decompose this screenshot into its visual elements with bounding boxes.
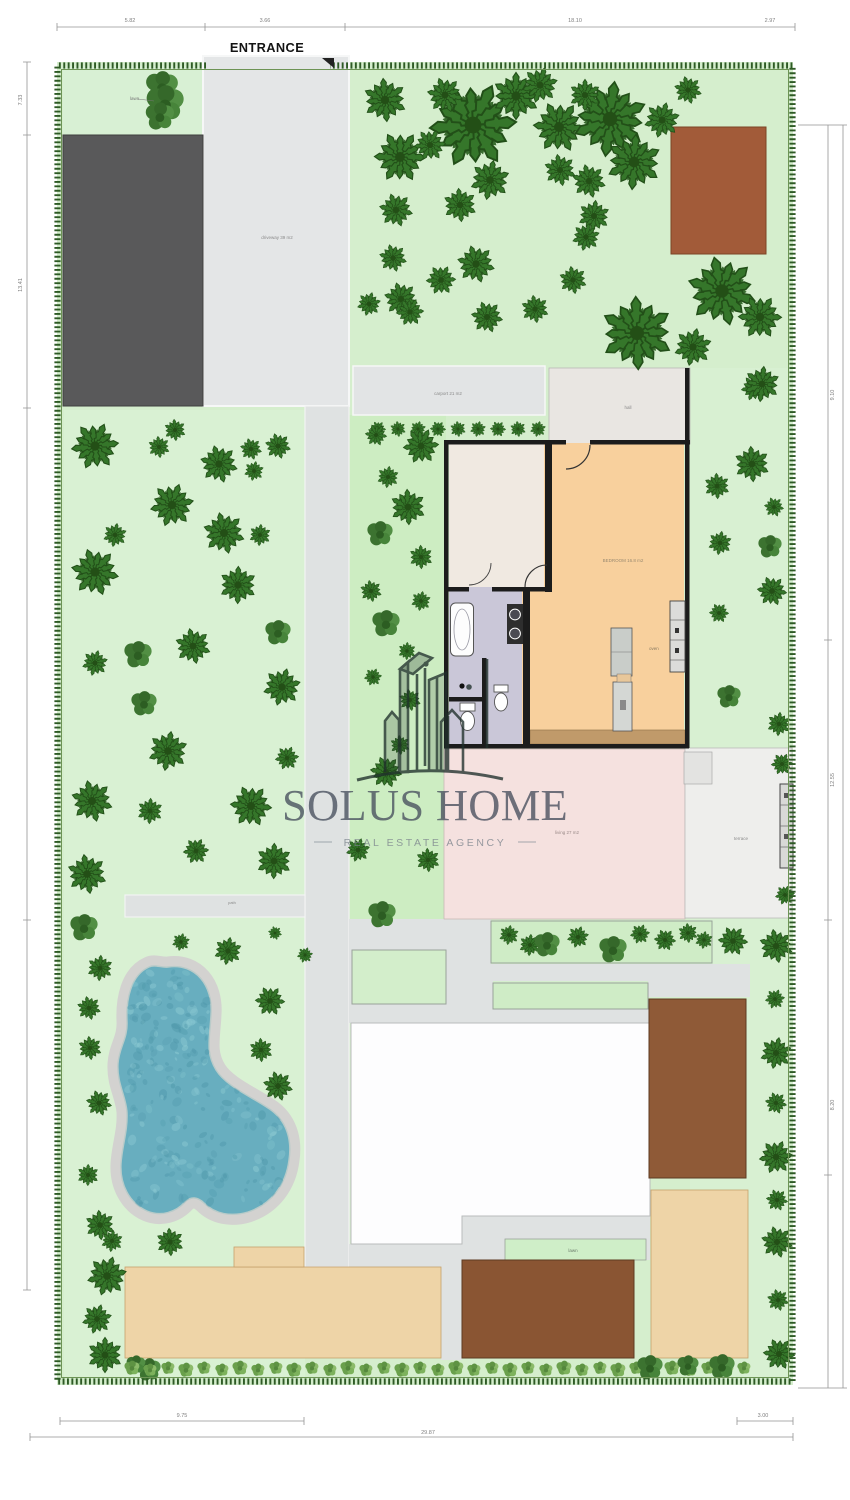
svg-text:lawn: lawn xyxy=(568,1248,578,1253)
svg-text:3.66: 3.66 xyxy=(260,18,271,24)
svg-text:5.82: 5.82 xyxy=(125,18,136,24)
svg-text:hall: hall xyxy=(624,405,631,410)
svg-text:BEDROOM 16.8 m2: BEDROOM 16.8 m2 xyxy=(603,558,644,563)
svg-text:REAL ESTATE AGENCY: REAL ESTATE AGENCY xyxy=(344,837,507,849)
svg-text:9.75: 9.75 xyxy=(177,1413,188,1419)
svg-text:3.00: 3.00 xyxy=(758,1413,769,1419)
svg-text:12.55: 12.55 xyxy=(830,773,836,787)
svg-text:carport 21 m2: carport 21 m2 xyxy=(434,391,462,396)
svg-text:terrace: terrace xyxy=(734,836,749,841)
svg-text:2.97: 2.97 xyxy=(765,18,776,24)
svg-text:8.20: 8.20 xyxy=(830,1100,836,1111)
svg-text:13.41: 13.41 xyxy=(18,278,24,292)
svg-text:ENTRANCE: ENTRANCE xyxy=(230,40,304,55)
svg-text:lawn: lawn xyxy=(130,96,140,101)
svg-text:path: path xyxy=(228,900,236,905)
svg-text:7.33: 7.33 xyxy=(18,95,24,106)
svg-text:SOLUS HOME: SOLUS HOME xyxy=(282,780,568,830)
svg-text:18.10: 18.10 xyxy=(568,18,582,24)
svg-text:oven: oven xyxy=(649,646,659,651)
svg-text:29.87: 29.87 xyxy=(421,1430,435,1436)
svg-text:living 27 m2: living 27 m2 xyxy=(555,830,580,835)
svg-text:9.10: 9.10 xyxy=(830,390,836,401)
svg-text:driveway 39 m2: driveway 39 m2 xyxy=(261,235,293,240)
